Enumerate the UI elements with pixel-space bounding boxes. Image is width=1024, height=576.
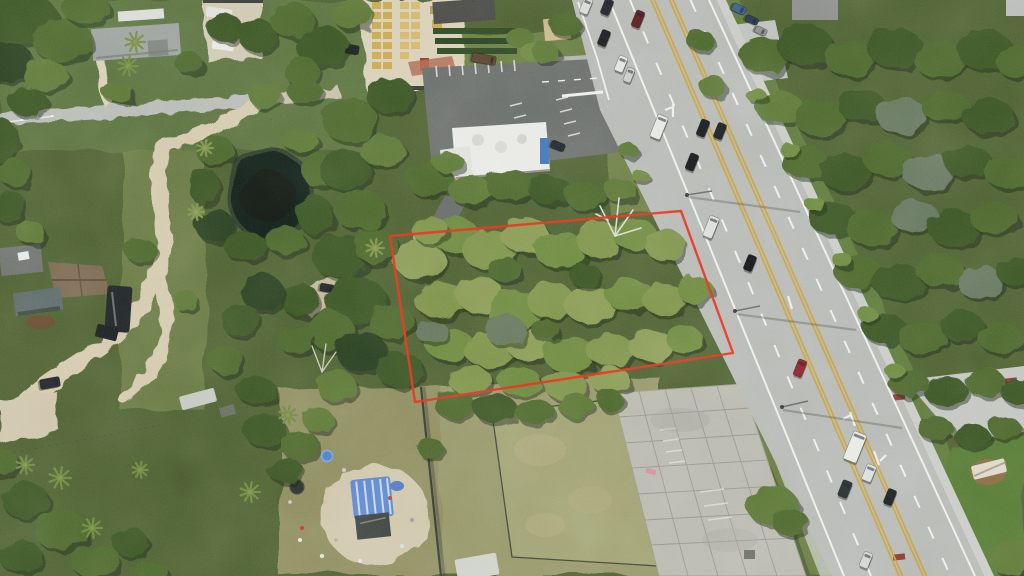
- film-grain-overlay: [0, 0, 1024, 576]
- aerial-photo-canvas: [0, 0, 1024, 576]
- aerial-photo: [0, 0, 1024, 576]
